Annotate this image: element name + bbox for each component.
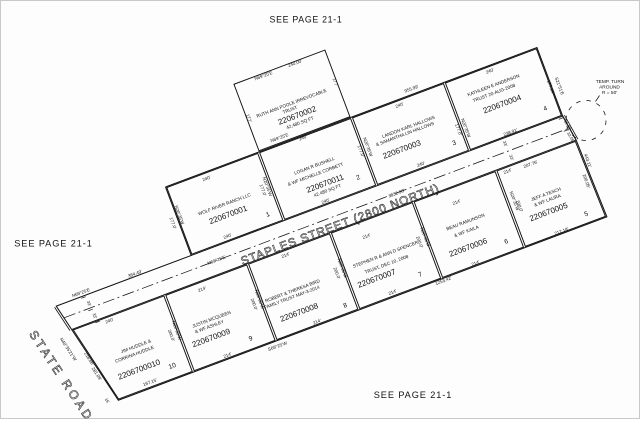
svg-text:AROUND: AROUND — [599, 85, 620, 91]
svg-text:SEE PAGE 21-1: SEE PAGE 21-1 — [374, 390, 452, 400]
svg-text:SEE PAGE 21-1: SEE PAGE 21-1 — [270, 15, 343, 25]
svg-text:TEMP. TURN: TEMP. TURN — [596, 79, 625, 85]
svg-text:R = 50': R = 50' — [602, 90, 617, 96]
svg-text:SEE PAGE 21-1: SEE PAGE 21-1 — [14, 238, 92, 248]
